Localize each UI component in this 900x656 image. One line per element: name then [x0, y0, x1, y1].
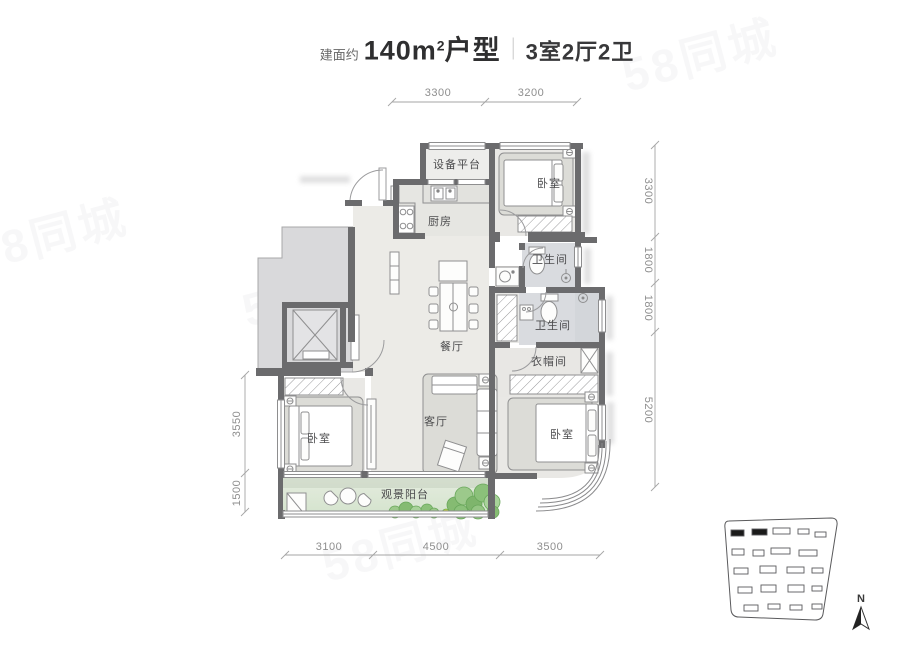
title-layout: 3室2厅2卫: [526, 35, 635, 67]
title-divider: [513, 37, 514, 59]
compass-north-label: N: [857, 593, 865, 605]
floorplan-image: 58同城 58同城 58同城 58同城: [0, 0, 900, 656]
room-label-cloakroom: 衣帽间: [531, 353, 567, 369]
dim-left-1: 3550: [231, 411, 243, 437]
dim-bottom-3: 3500: [537, 541, 563, 553]
dim-right-2: 1800: [642, 247, 654, 273]
dim-bottom-1: 3100: [316, 541, 342, 553]
title-area-value: 140m: [364, 36, 437, 67]
title-area-prefix: 建面约: [320, 45, 359, 64]
dim-right-3: 1800: [642, 295, 654, 321]
room-label-balcony: 观景阳台: [381, 486, 429, 502]
room-label-dining: 餐厅: [440, 338, 464, 354]
room-label-kitchen: 厨房: [428, 213, 452, 229]
dim-top-1: 3300: [425, 87, 451, 99]
room-label-bedroom-left: 卧室: [307, 430, 331, 446]
plan-title: 建面约 140m 2 户型 3室2厅2卫: [320, 29, 635, 68]
site-plan: [725, 518, 837, 620]
room-label-bedroom-top: 卧室: [537, 175, 561, 191]
title-area-exponent: 2: [437, 38, 445, 54]
title-type-suffix: 户型: [445, 29, 501, 68]
compass-icon: [853, 607, 869, 629]
room-label-living: 客厅: [424, 413, 448, 429]
vanity-icon: [496, 267, 519, 286]
dim-left-2: 1500: [231, 480, 243, 506]
room-label-bath-upper: 卫生间: [532, 251, 568, 267]
dim-right-4: 5200: [642, 397, 654, 423]
dim-top-2: 3200: [518, 87, 544, 99]
room-label-bath-lower: 卫生间: [535, 317, 571, 333]
room-label-equipment-platform: 设备平台: [433, 156, 481, 172]
room-label-bedroom-right: 卧室: [550, 426, 574, 442]
dim-right-1: 3300: [642, 178, 654, 204]
dim-bottom-2: 4500: [423, 541, 449, 553]
